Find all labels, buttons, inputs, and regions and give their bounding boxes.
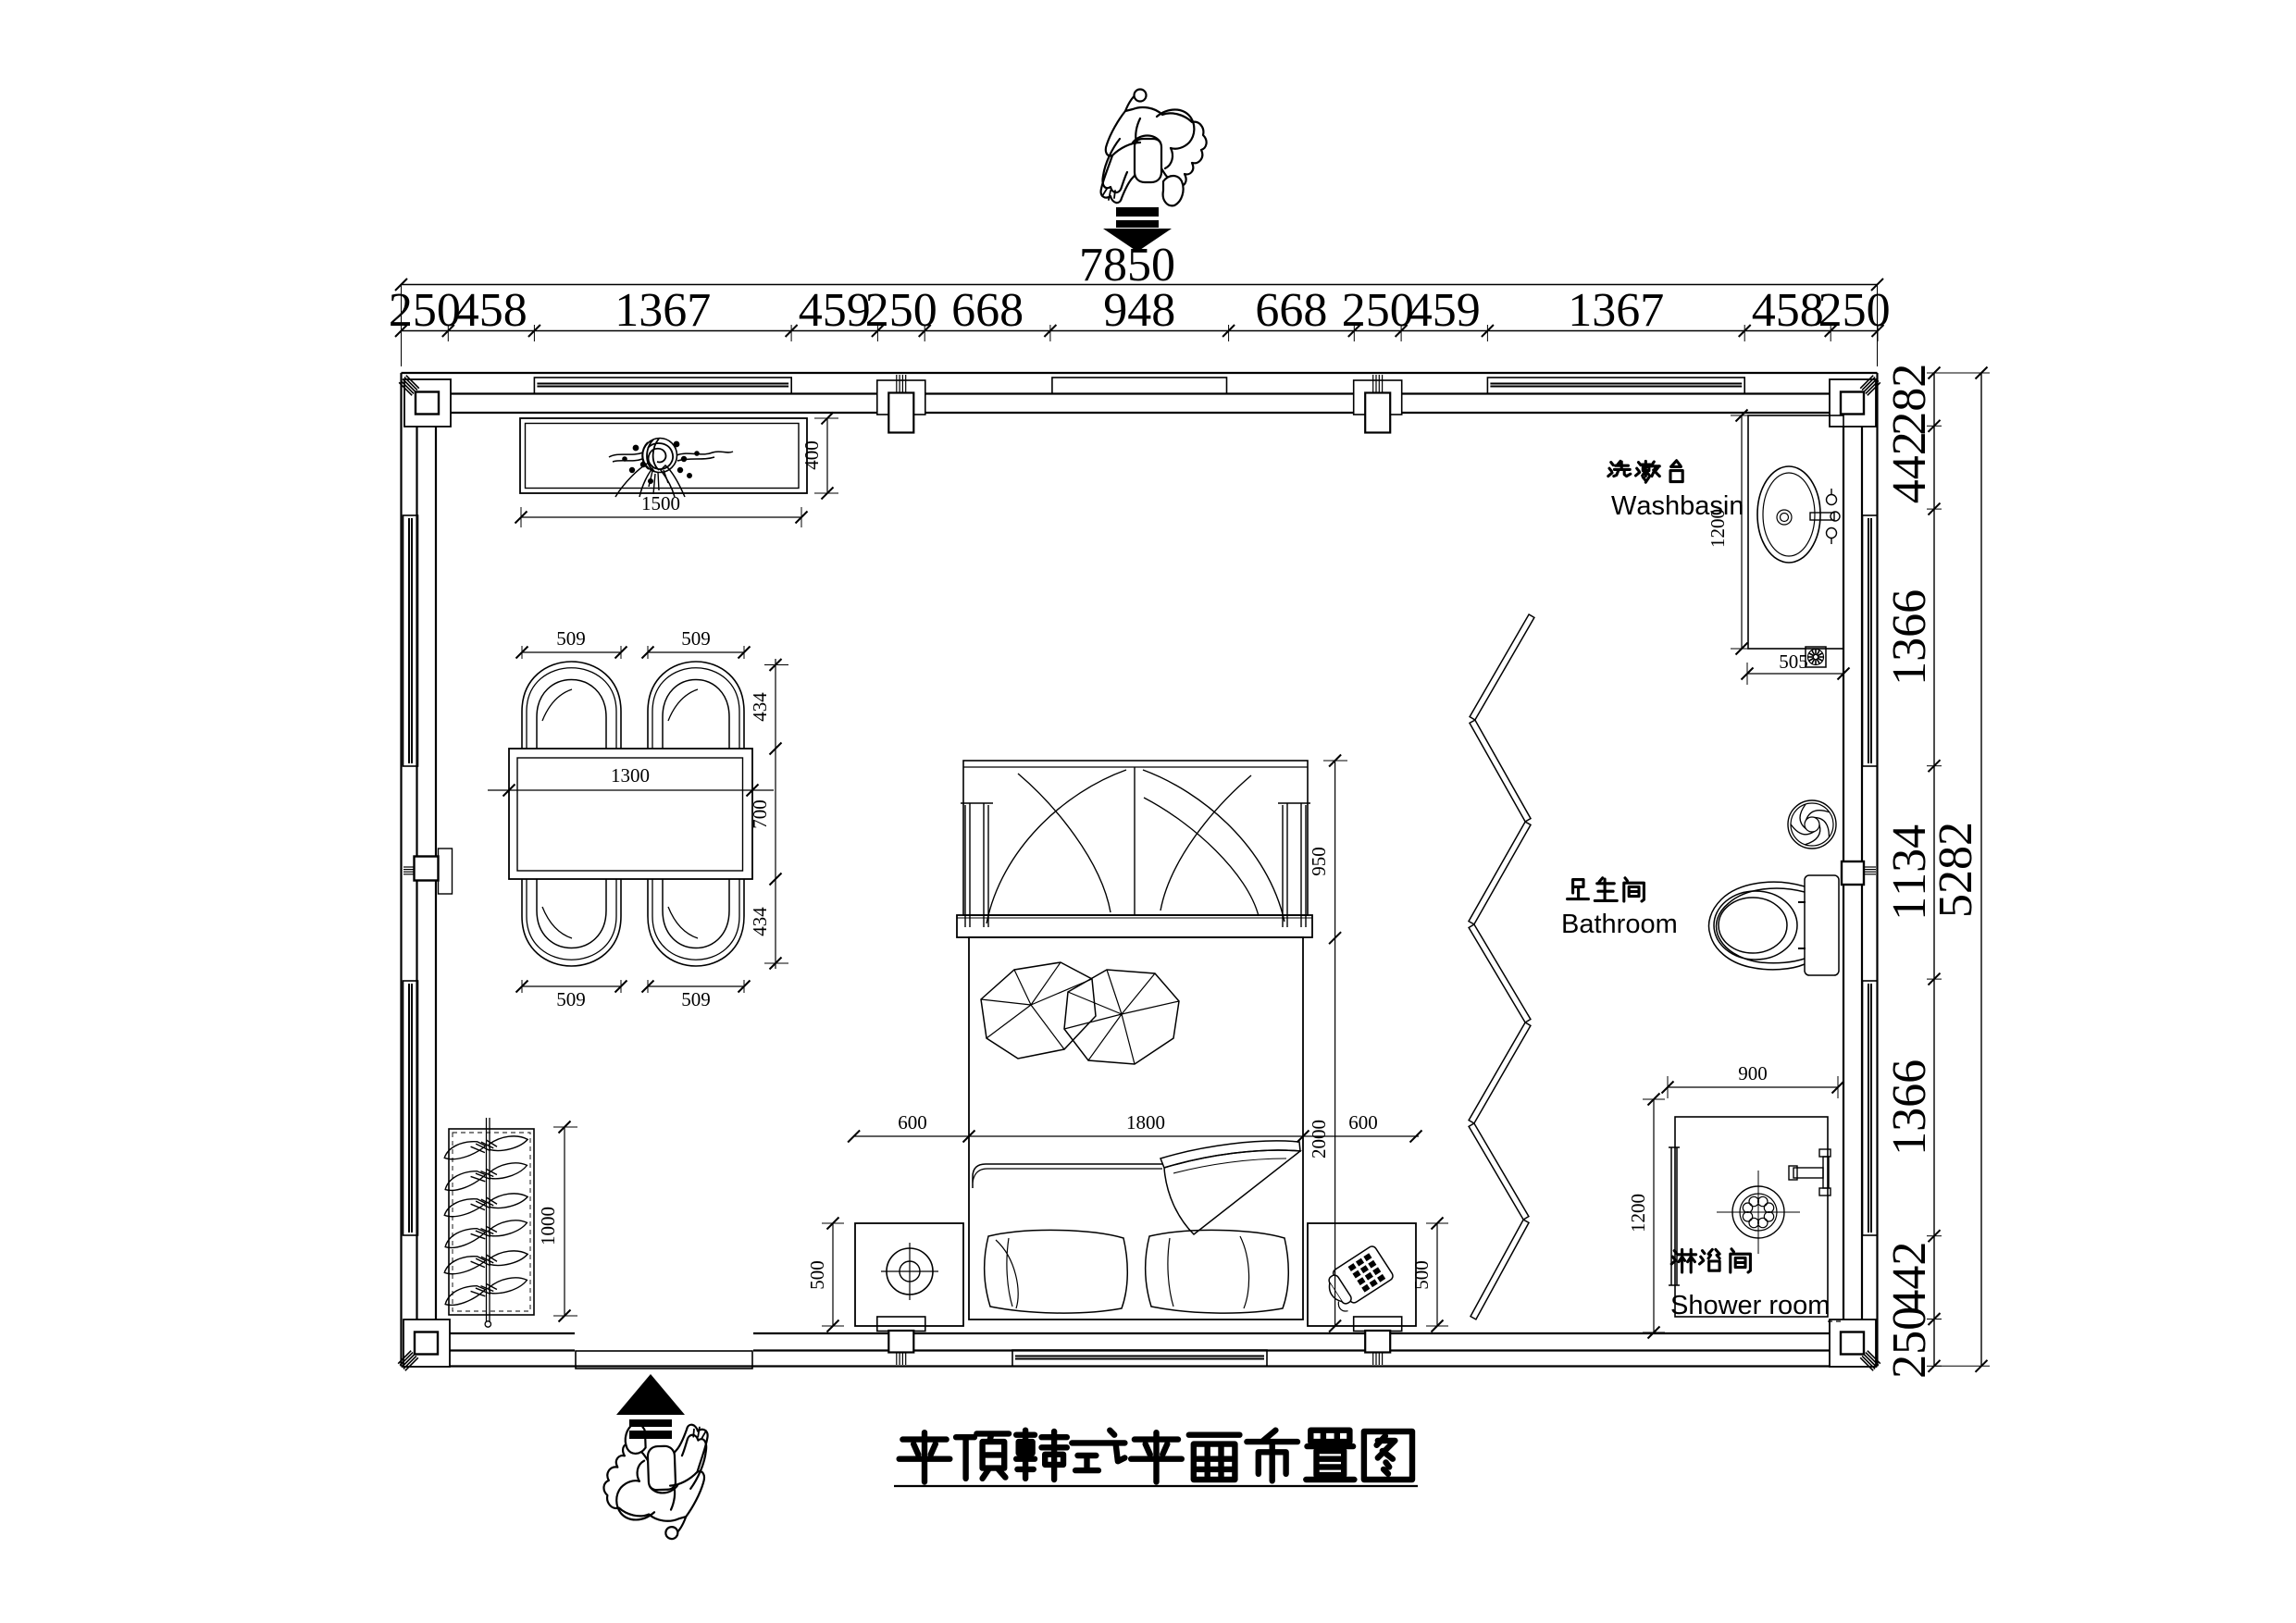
svg-text:600: 600 [1348,1111,1378,1134]
svg-text:400: 400 [800,440,823,470]
svg-text:459: 459 [1409,284,1481,337]
svg-text:500: 500 [1410,1260,1433,1290]
svg-text:1200: 1200 [1627,1194,1649,1233]
svg-text:5282: 5282 [1930,822,1982,918]
svg-text:1367: 1367 [614,284,711,337]
svg-text:1800: 1800 [1126,1111,1165,1134]
svg-text:500: 500 [806,1260,828,1290]
svg-text:509: 509 [681,627,711,650]
svg-text:505: 505 [1779,650,1808,673]
svg-text:442: 442 [1883,1242,1936,1314]
svg-text:1300: 1300 [611,764,650,787]
svg-text:1366: 1366 [1883,589,1936,686]
svg-text:434: 434 [749,907,771,936]
svg-text:509: 509 [556,988,586,1010]
svg-text:458: 458 [1752,284,1824,337]
svg-text:509: 509 [556,627,586,650]
svg-text:900: 900 [1738,1062,1768,1084]
svg-text:668: 668 [1255,284,1327,337]
svg-text:Shower room: Shower room [1670,1291,1830,1320]
svg-text:Bathroom: Bathroom [1561,910,1678,939]
svg-text:509: 509 [681,988,711,1010]
svg-text:600: 600 [898,1111,927,1134]
svg-text:458: 458 [455,284,527,337]
svg-text:250: 250 [1883,1307,1936,1379]
svg-text:2000: 2000 [1308,1120,1330,1158]
svg-text:950: 950 [1308,847,1330,876]
svg-text:1134: 1134 [1883,824,1936,921]
svg-text:1366: 1366 [1883,1059,1936,1156]
svg-text:1000: 1000 [537,1207,559,1245]
svg-text:442: 442 [1883,431,1936,503]
svg-text:668: 668 [951,284,1024,337]
svg-text:434: 434 [749,692,771,722]
svg-text:459: 459 [799,284,871,337]
svg-text:282: 282 [1883,364,1936,436]
svg-text:1367: 1367 [1568,284,1664,337]
svg-text:1200: 1200 [1706,509,1729,548]
svg-text:700: 700 [749,799,771,829]
svg-text:948: 948 [1103,284,1175,337]
svg-text:1500: 1500 [641,492,680,514]
